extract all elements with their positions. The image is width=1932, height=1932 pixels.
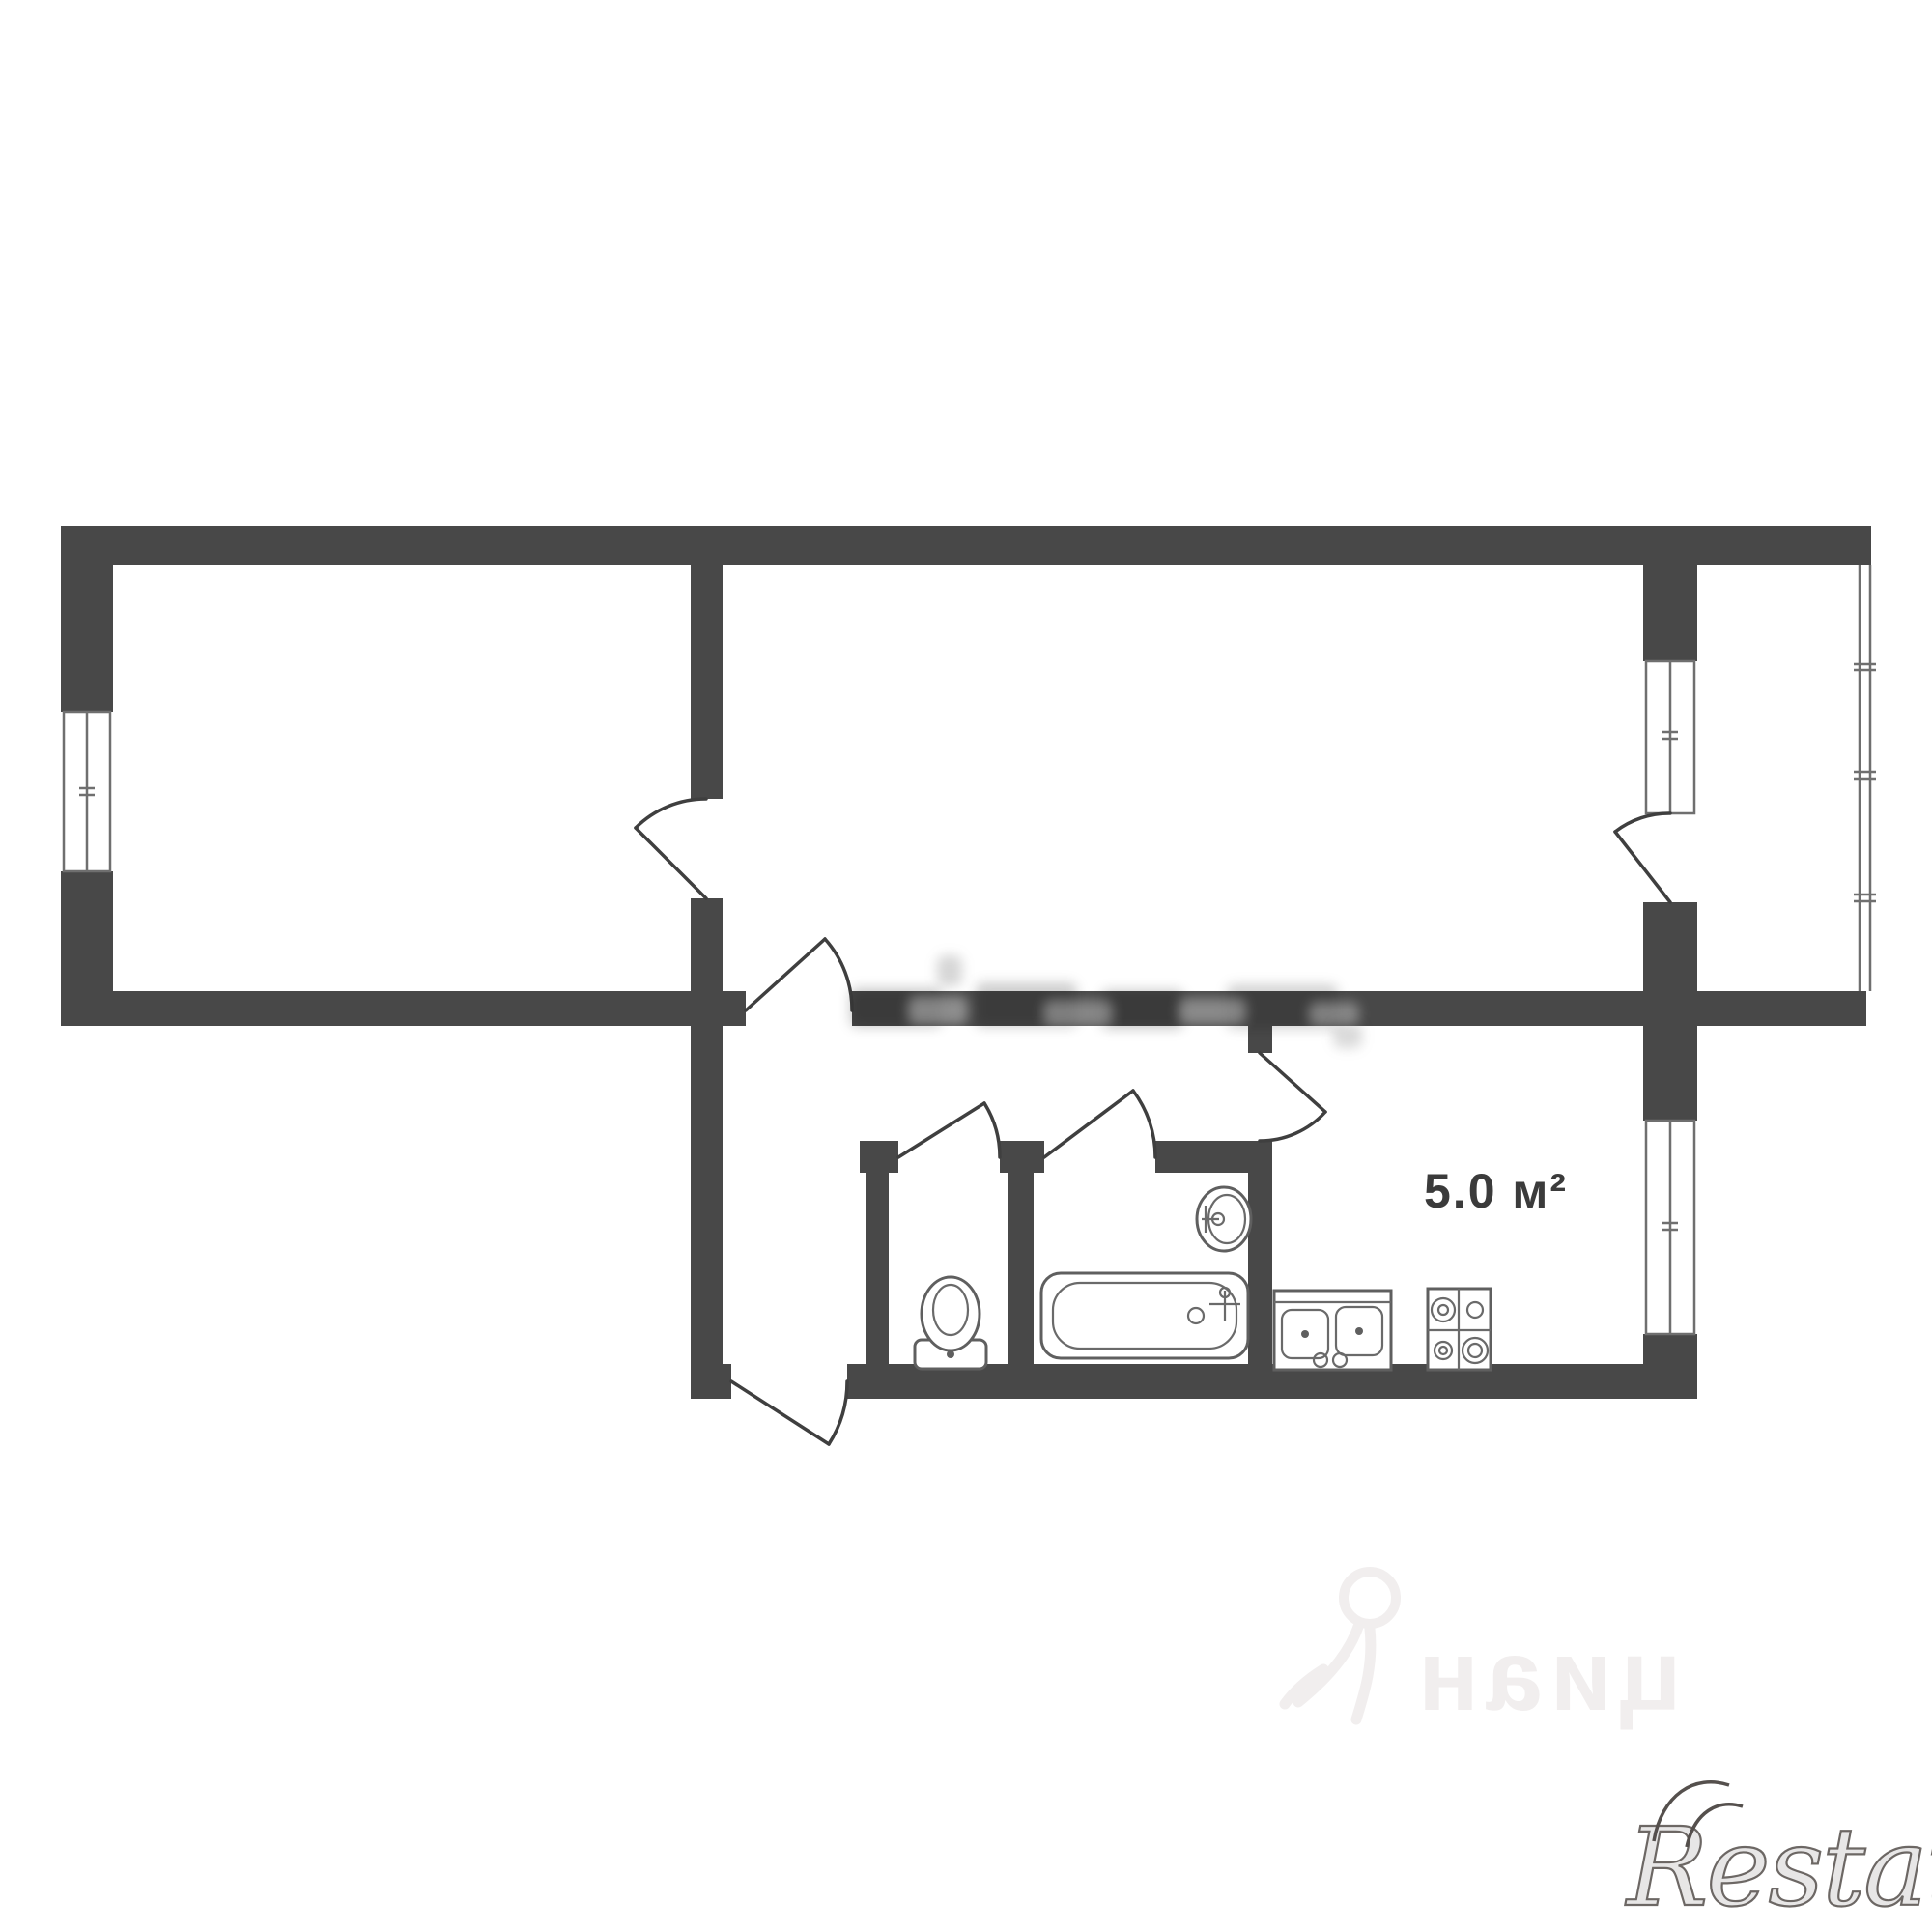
door-toilet — [898, 1103, 1000, 1157]
windows — [64, 565, 1876, 1334]
wall-toilet-top-stub — [860, 1141, 898, 1173]
wall-long-right — [852, 991, 1866, 1026]
wall-divider-lower — [691, 898, 723, 1364]
wall-toilet-bath — [1008, 1173, 1034, 1364]
restate-watermark-text: Restate — [1627, 1814, 1932, 1922]
wall-top — [61, 526, 1871, 565]
wall-left-upper — [61, 565, 113, 712]
walls — [61, 526, 1871, 1399]
door-middle-room — [746, 939, 852, 1010]
bathtub — [1041, 1273, 1248, 1358]
window-loggia-glazing — [1854, 565, 1876, 991]
wall-kitchen-left — [1248, 1141, 1272, 1364]
toilet-fixture — [915, 1277, 986, 1369]
door-left-room — [636, 799, 706, 898]
floor-plan-canvas: 5.0 м² циан Restate — [0, 0, 1932, 1932]
stove — [1428, 1289, 1491, 1370]
wall-bottom-stub — [691, 1364, 731, 1399]
wall-divider-upper — [691, 565, 723, 799]
door-bathroom — [1044, 1091, 1155, 1157]
door-loggia — [1615, 813, 1670, 902]
kitchen-area-label: 5.0 м² — [1424, 1163, 1568, 1219]
wall-right-room-upper — [1643, 565, 1697, 661]
window-left-room — [64, 712, 110, 871]
fixtures — [915, 1187, 1491, 1370]
wash-basin — [1197, 1187, 1251, 1251]
door-kitchen — [1260, 1053, 1325, 1141]
wall-kitchen-stub — [1248, 1026, 1272, 1053]
restate-watermark: Restate — [1592, 1793, 1932, 1932]
wall-right-room-lower — [1643, 1334, 1697, 1399]
floor-plan-drawing — [0, 0, 1932, 1932]
window-kitchen — [1646, 1121, 1694, 1334]
wall-long-left — [61, 991, 746, 1026]
window-middle-room — [1646, 661, 1694, 813]
wall-right-room-mid — [1643, 902, 1697, 1121]
wall-toilet-bath-top — [1000, 1141, 1044, 1173]
kitchen-sink — [1274, 1291, 1391, 1370]
wall-toilet-left — [866, 1173, 889, 1364]
door-entry — [731, 1381, 847, 1444]
